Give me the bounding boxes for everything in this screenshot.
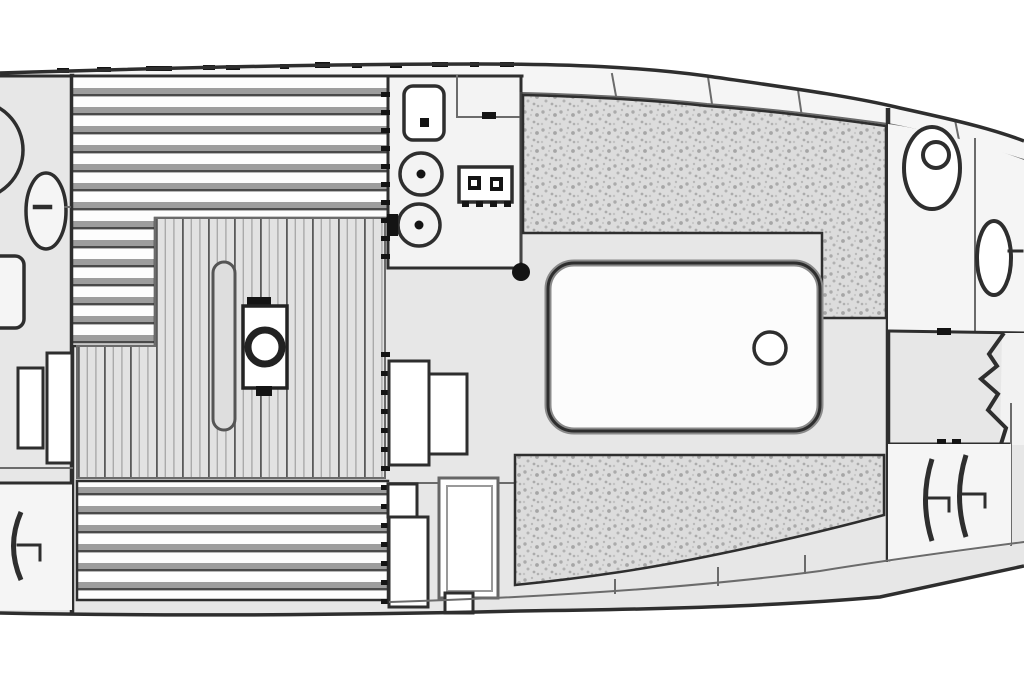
galley-stove (459, 167, 512, 207)
table-ring (754, 332, 786, 364)
boat-floor-plan (0, 0, 1024, 680)
floor-plan-canvas (0, 0, 1024, 680)
mast-post (512, 263, 530, 281)
aft-seat-steps (47, 353, 72, 463)
aft-locker-door (0, 256, 24, 328)
table-leaf (213, 262, 235, 430)
fwd-hanging-lockers (888, 444, 1011, 562)
aft-washbasin (26, 173, 66, 249)
fwd-head (888, 124, 1024, 335)
saloon-table (548, 263, 820, 431)
berth-lower-slats (77, 481, 388, 600)
sink-drain (420, 118, 429, 127)
galley-sink (404, 86, 444, 140)
aft-seat-steps-2 (18, 368, 43, 448)
galley-counter (387, 76, 521, 268)
icebox-lid-latch (482, 112, 496, 119)
head-washbasin (977, 221, 1011, 295)
cabin-heater (243, 297, 287, 396)
locker-handle (387, 214, 398, 236)
